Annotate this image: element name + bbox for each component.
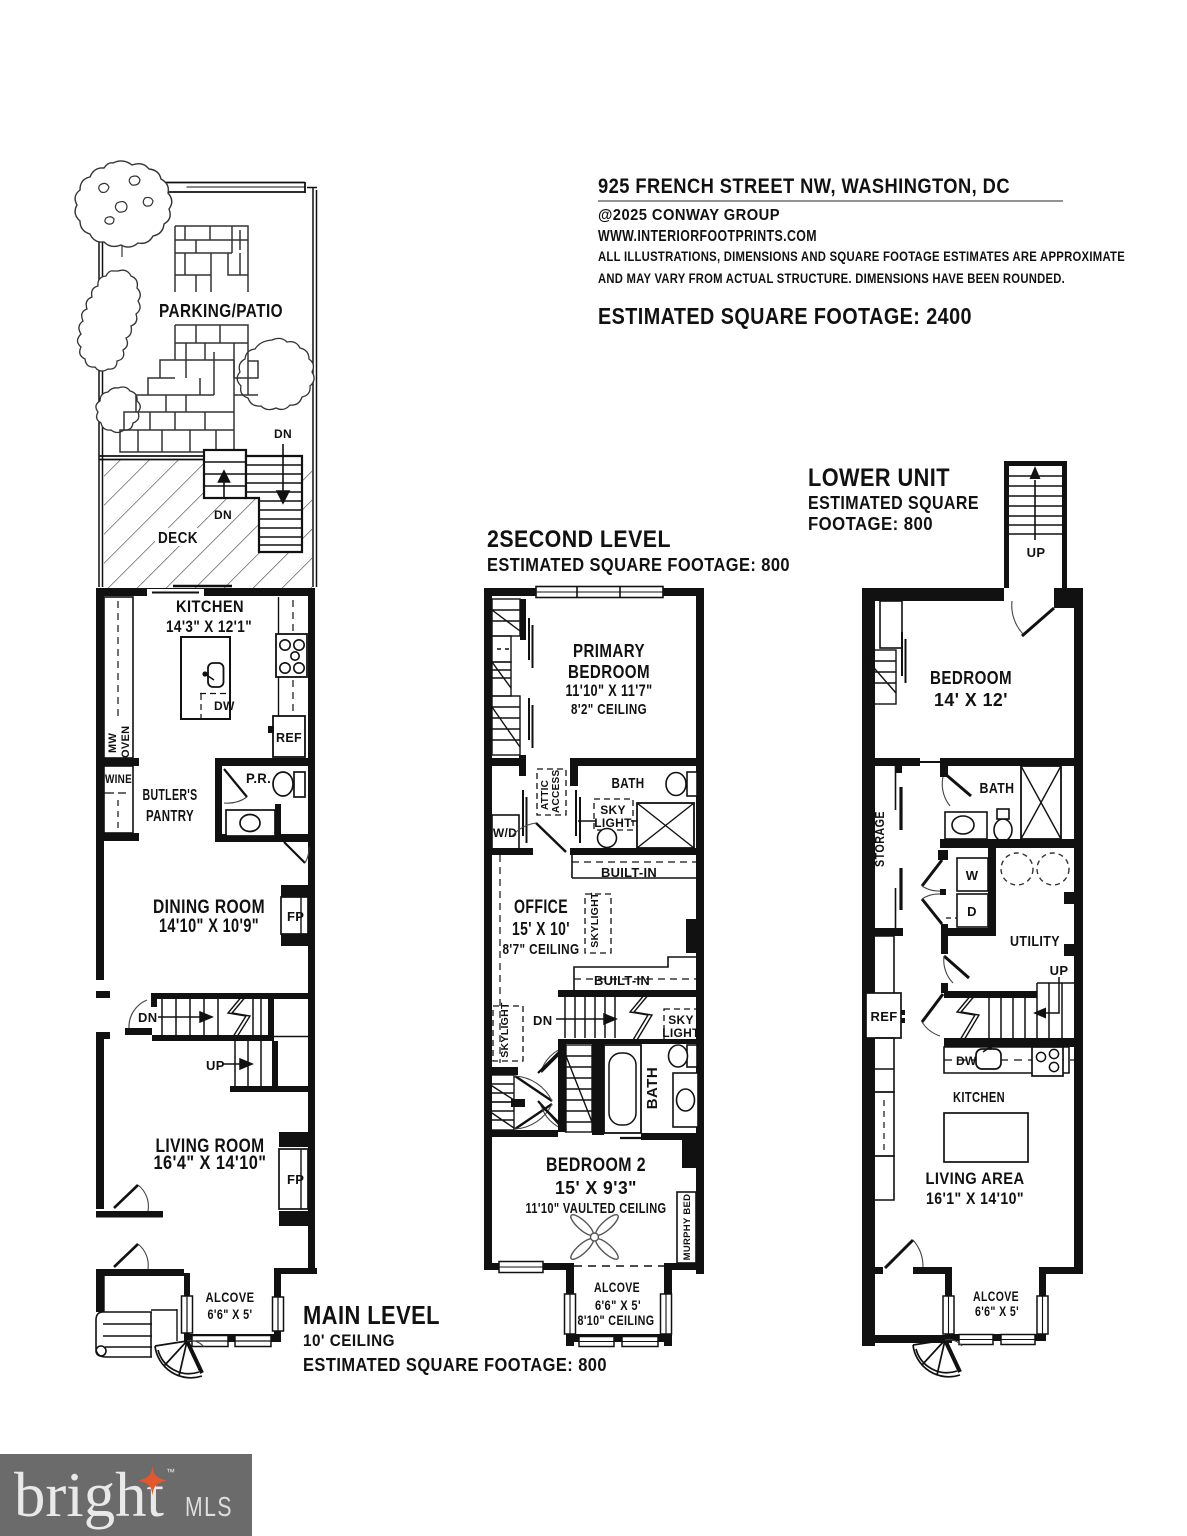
svg-text:ACCESS: ACCESS <box>551 769 562 813</box>
svg-text:W: W <box>966 868 979 883</box>
svg-text:BATH: BATH <box>612 775 645 792</box>
svg-text:P.R.: P.R. <box>246 770 271 786</box>
svg-text:W/D: W/D <box>493 826 517 840</box>
svg-text:6'6" X 5': 6'6" X 5' <box>595 1297 641 1313</box>
svg-text:UP: UP <box>1050 963 1069 978</box>
svg-text:ALCOVE: ALCOVE <box>206 1289 255 1305</box>
svg-text:2SECOND LEVEL: 2SECOND LEVEL <box>487 526 671 553</box>
svg-text:OFFICE: OFFICE <box>514 897 568 918</box>
svg-text:DN: DN <box>214 508 232 522</box>
svg-text:FP: FP <box>287 909 304 924</box>
svg-text:15' X 9'3": 15' X 9'3" <box>555 1178 637 1198</box>
svg-text:MW: MW <box>107 733 119 753</box>
svg-text:DECK: DECK <box>158 530 198 547</box>
svg-text:BATH: BATH <box>644 1067 661 1110</box>
svg-text:FP: FP <box>287 1172 304 1187</box>
svg-text:ESTIMATED SQUARE: ESTIMATED SQUARE <box>808 492 979 513</box>
svg-text:14'10" X 10'9": 14'10" X 10'9" <box>159 916 259 937</box>
svg-text:DW: DW <box>214 699 235 713</box>
svg-text:D: D <box>967 904 977 919</box>
svg-text:ESTIMATED SQUARE FOOTAGE: 2400: ESTIMATED SQUARE FOOTAGE: 2400 <box>598 303 972 329</box>
svg-text:BEDROOM: BEDROOM <box>568 662 650 682</box>
svg-text:DN: DN <box>533 1013 552 1028</box>
svg-text:ESTIMATED SQUARE FOOTAGE: 800: ESTIMATED SQUARE FOOTAGE: 800 <box>303 1355 607 1375</box>
svg-text:14'3" X 12'1": 14'3" X 12'1" <box>166 617 252 636</box>
svg-text:WINE: WINE <box>105 774 132 786</box>
svg-text:KITCHEN: KITCHEN <box>176 597 244 616</box>
svg-text:SKYLIGHT: SKYLIGHT <box>589 892 601 948</box>
svg-text:SKYLIGHT: SKYLIGHT <box>499 1002 511 1058</box>
svg-text:11'10" X 11'7": 11'10" X 11'7" <box>566 681 653 700</box>
svg-text:14' X 12': 14' X 12' <box>934 690 1008 710</box>
svg-text:BEDROOM 2: BEDROOM 2 <box>546 1155 646 1176</box>
svg-text:11'10" VAULTED CEILING: 11'10" VAULTED CEILING <box>526 1200 667 1217</box>
svg-text:BUILT-IN: BUILT-IN <box>601 865 657 880</box>
svg-text:@2025 CONWAY GROUP: @2025 CONWAY GROUP <box>598 207 780 224</box>
svg-text:SKY: SKY <box>600 803 626 817</box>
svg-text:10' CEILING: 10' CEILING <box>303 1332 395 1350</box>
svg-text:8'10" CEILING: 8'10" CEILING <box>578 1312 655 1328</box>
svg-text:PRIMARY: PRIMARY <box>573 641 645 661</box>
svg-text:8'2" CEILING: 8'2" CEILING <box>571 701 647 718</box>
svg-text:UP: UP <box>206 1058 225 1073</box>
svg-text:ALCOVE: ALCOVE <box>973 1288 1019 1304</box>
svg-text:MAIN LEVEL: MAIN LEVEL <box>303 1300 440 1330</box>
svg-text:UTILITY: UTILITY <box>1010 933 1060 950</box>
svg-text:UP: UP <box>1027 545 1046 560</box>
svg-text:LOWER UNIT: LOWER UNIT <box>808 464 950 492</box>
svg-text:REF: REF <box>276 731 302 745</box>
svg-text:ESTIMATED SQUARE FOOTAGE: 800: ESTIMATED SQUARE FOOTAGE: 800 <box>487 554 790 575</box>
svg-text:6'6" X 5': 6'6" X 5' <box>208 1306 253 1322</box>
svg-text:MURPHY BED: MURPHY BED <box>682 1194 693 1261</box>
svg-text:STORAGE: STORAGE <box>873 811 887 867</box>
svg-text:REF: REF <box>871 1009 898 1024</box>
svg-text:BATH: BATH <box>980 780 1015 797</box>
svg-text:PARKING/PATIO: PARKING/PATIO <box>159 301 283 321</box>
svg-text:ALL ILLUSTRATIONS, DIMENSIONS: ALL ILLUSTRATIONS, DIMENSIONS AND SQUARE… <box>598 249 1125 264</box>
svg-text:PANTRY: PANTRY <box>146 808 194 825</box>
svg-text:DN: DN <box>138 1010 157 1025</box>
svg-text:LIVING AREA: LIVING AREA <box>926 1169 1025 1188</box>
svg-text:BUILT-IN: BUILT-IN <box>594 973 650 988</box>
svg-text:DINING ROOM: DINING ROOM <box>153 897 265 918</box>
svg-text:DW: DW <box>956 1054 977 1068</box>
svg-text:16'4" X 14'10": 16'4" X 14'10" <box>154 1153 267 1174</box>
svg-text:LIGHT: LIGHT <box>594 816 632 830</box>
svg-text:WWW.INTERIORFOOTPRINTS.COM: WWW.INTERIORFOOTPRINTS.COM <box>598 228 817 245</box>
svg-text:BEDROOM: BEDROOM <box>930 668 1012 688</box>
svg-text:15' X 10': 15' X 10' <box>512 919 570 939</box>
svg-text:925 FRENCH STREET NW, WASHINGT: 925 FRENCH STREET NW, WASHINGTON, DC <box>598 175 1010 198</box>
svg-text:6'6" X 5': 6'6" X 5' <box>975 1303 1019 1319</box>
svg-text:ALCOVE: ALCOVE <box>594 1279 640 1295</box>
svg-text:BUTLER'S: BUTLER'S <box>143 787 198 804</box>
svg-text:AND MAY VARY FROM ACTUAL STRUC: AND MAY VARY FROM ACTUAL STRUCTURE. DIME… <box>598 271 1065 286</box>
svg-text:SKY: SKY <box>668 1013 694 1027</box>
svg-text:MLS: MLS <box>185 1491 233 1522</box>
svg-text:8'7" CEILING: 8'7" CEILING <box>503 941 580 958</box>
svg-text:™: ™ <box>166 1467 175 1477</box>
svg-text:KITCHEN: KITCHEN <box>953 1089 1005 1106</box>
svg-text:FOOTAGE: 800: FOOTAGE: 800 <box>808 513 933 534</box>
svg-text:bright: bright <box>14 1459 164 1530</box>
svg-text:OVEN: OVEN <box>120 726 132 758</box>
svg-text:16'1" X 14'10": 16'1" X 14'10" <box>926 1189 1024 1208</box>
svg-text:DN: DN <box>274 427 292 441</box>
svg-text:LIGHT: LIGHT <box>662 1026 700 1040</box>
svg-text:ATTIC: ATTIC <box>540 780 551 810</box>
